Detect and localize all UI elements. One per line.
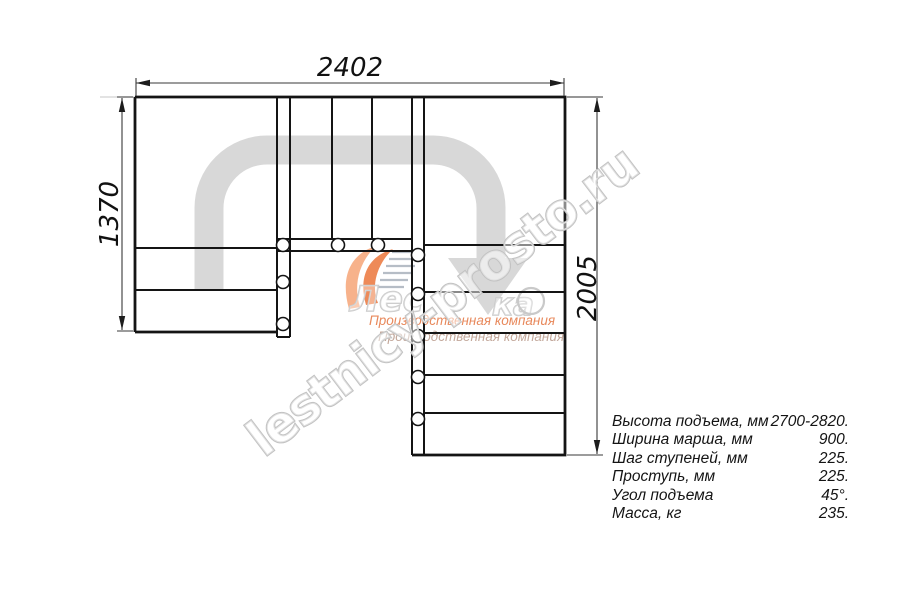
spec-row: Ширина марша, мм 900.: [612, 431, 849, 449]
spec-row: Высота подъема, мм 2700-2820.: [612, 413, 849, 431]
spec-row: Масса, кг 235.: [612, 505, 849, 523]
fastener-circle: [332, 239, 345, 252]
spec-value: 235.: [819, 505, 849, 523]
dim-arrow-down-icon: [594, 440, 600, 454]
spec-row: Проступь, мм 225.: [612, 468, 849, 486]
dim-arrow-up-icon: [119, 98, 125, 112]
spec-label: Угол подъема: [612, 487, 713, 505]
fastener-circle: [412, 371, 425, 384]
dim-arrow-down-icon: [119, 316, 125, 330]
dimension-top-label: 2402: [317, 53, 383, 83]
spec-value: 225.: [819, 450, 849, 468]
fastener-circle: [277, 276, 290, 289]
spec-label: Высота подъема, мм: [612, 413, 769, 431]
fastener-circle: [277, 318, 290, 331]
fastener-circle: [277, 239, 290, 252]
fastener-circle: [372, 239, 385, 252]
dim-arrow-left-icon: [136, 80, 150, 86]
dim-arrow-right-icon: [550, 80, 564, 86]
dimension-top: 2402: [136, 53, 564, 96]
dimension-right-label: 2005: [573, 255, 603, 321]
spec-value: 225.: [819, 468, 849, 486]
dimension-left: 1370: [95, 97, 133, 331]
spec-label: Шаг ступеней, мм: [612, 450, 748, 468]
dim-arrow-up-icon: [594, 98, 600, 112]
spec-label: Проступь, мм: [612, 468, 715, 486]
dimension-left-label: 1370: [95, 181, 125, 247]
spec-row: Угол подъема 45°.: [612, 487, 849, 505]
fastener-circle: [412, 413, 425, 426]
spec-value: 900.: [819, 431, 849, 449]
fastener-circle: [412, 249, 425, 262]
spec-value: 2700-2820.: [771, 413, 849, 431]
spec-label: Масса, кг: [612, 505, 681, 523]
spec-table: Высота подъема, мм 2700-2820. Ширина мар…: [612, 413, 849, 523]
staircase-plan-page: Лес ка Производственная компания Произво…: [0, 0, 900, 600]
spec-label: Ширина марша, мм: [612, 431, 753, 449]
spec-value: 45°.: [821, 487, 849, 505]
spec-row: Шаг ступеней, мм 225.: [612, 450, 849, 468]
